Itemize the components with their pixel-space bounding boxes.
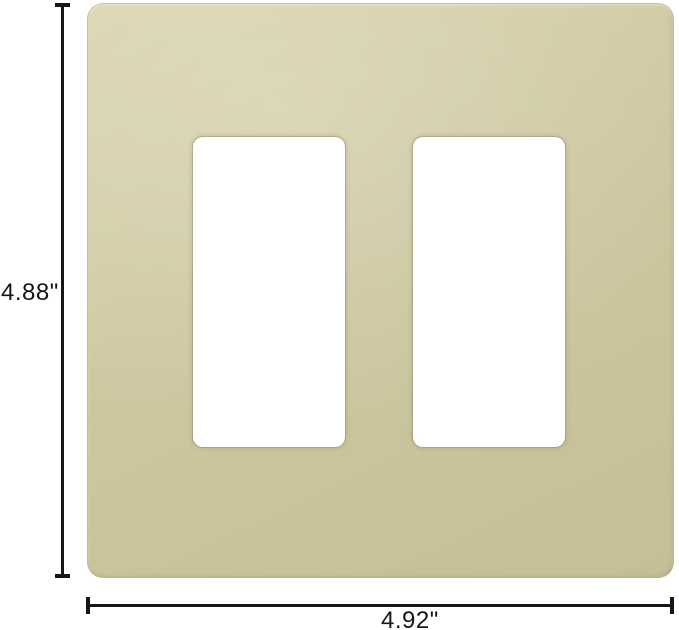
wall-plate (87, 3, 674, 578)
width-dimension-tick-left (86, 597, 90, 614)
height-dimension-line (61, 3, 64, 578)
product-dimension-diagram: 4.88" 4.92" (0, 0, 679, 630)
height-dimension-label: 4.88" (1, 281, 59, 305)
width-dimension-label: 4.92" (381, 609, 439, 630)
height-dimension-tick-bottom (55, 574, 70, 578)
width-dimension-line (86, 604, 674, 607)
width-dimension-tick-right (670, 597, 674, 614)
plate-opening-right (413, 137, 565, 447)
height-dimension-tick-top (55, 3, 70, 7)
plate-opening-left (193, 137, 345, 447)
